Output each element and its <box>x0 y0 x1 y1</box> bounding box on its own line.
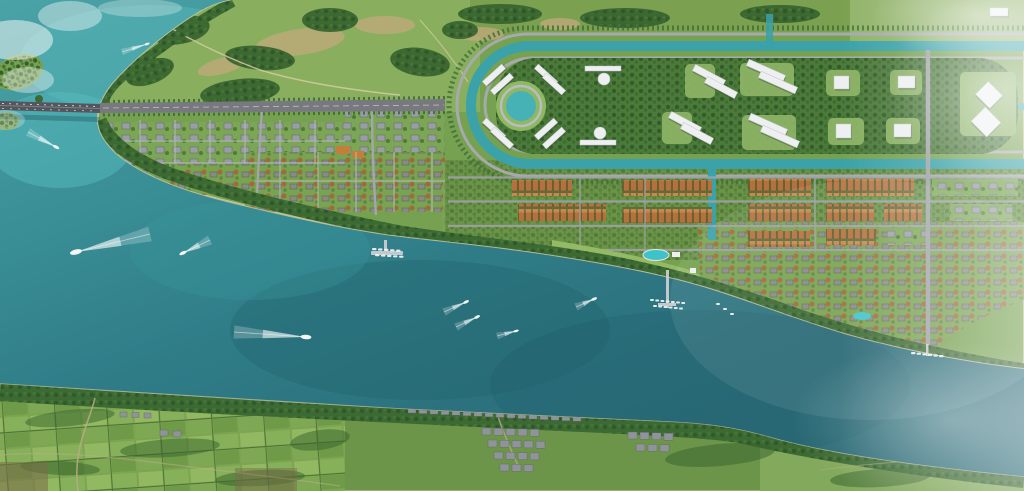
moored-boat <box>658 306 662 308</box>
moored-boat <box>387 255 392 257</box>
tree-clump-texture <box>304 10 356 31</box>
village-house <box>524 465 533 472</box>
tree-clump-texture <box>444 23 476 38</box>
village-house <box>120 412 127 417</box>
tilled-patch-2 <box>235 468 297 491</box>
village-house <box>494 428 503 435</box>
dome-pavilion <box>598 73 610 85</box>
tree-clump-texture <box>460 6 540 23</box>
tree-clump-texture <box>742 7 818 22</box>
village-house <box>132 413 139 418</box>
moored-boat <box>378 248 383 250</box>
townhouse-row <box>512 180 572 196</box>
village-house <box>173 431 181 437</box>
sand-patch <box>355 16 415 34</box>
village-house <box>636 444 645 451</box>
village-house <box>536 441 545 448</box>
moored-boat <box>653 305 657 307</box>
resort-building <box>672 252 680 257</box>
canal-connector-north <box>766 14 773 48</box>
village-house <box>640 432 649 439</box>
village-house <box>628 432 637 439</box>
village-house <box>506 452 515 459</box>
village-house <box>512 441 521 448</box>
swimming-pool-lagoon <box>643 250 669 261</box>
community-building <box>336 146 350 154</box>
village-house <box>482 428 491 435</box>
townhouse-row <box>622 207 712 223</box>
village-house <box>488 440 497 447</box>
moored-boat <box>399 256 404 258</box>
townhouse-row <box>622 180 712 196</box>
village-house <box>512 464 521 471</box>
moored-boat <box>655 300 659 302</box>
village-house <box>506 429 515 436</box>
village-house <box>518 453 527 460</box>
townhouse-row <box>518 204 606 221</box>
village-house <box>500 464 509 471</box>
village-house <box>652 433 661 440</box>
moored-boat <box>372 248 377 250</box>
moored-boat <box>375 254 380 256</box>
scene-canvas <box>0 0 1024 491</box>
village-house <box>518 429 527 436</box>
village-house <box>530 453 539 460</box>
village-house <box>500 440 509 447</box>
moored-boat <box>390 249 395 251</box>
moored-boat <box>660 300 664 302</box>
tilled-patch <box>0 462 48 491</box>
village-house <box>660 445 669 452</box>
moored-boat <box>384 249 389 251</box>
aerial-masterplan-render <box>0 0 1024 491</box>
village-house <box>144 413 151 418</box>
village-house <box>524 441 533 448</box>
white-building <box>585 66 621 71</box>
village-house <box>664 433 673 440</box>
moored-boat <box>393 255 398 257</box>
white-building <box>580 140 616 145</box>
community-building-2 <box>352 151 364 158</box>
village-house <box>648 444 657 451</box>
moored-boat <box>381 254 386 256</box>
moored-boat <box>663 306 667 308</box>
dome-pavilion <box>594 127 606 139</box>
moored-boat <box>666 301 670 303</box>
moored-boat <box>650 299 654 301</box>
village-house <box>530 429 539 436</box>
moored-boat <box>396 250 401 252</box>
village-house <box>160 430 168 436</box>
village-house <box>494 452 503 459</box>
tree-clump-texture <box>582 10 668 27</box>
